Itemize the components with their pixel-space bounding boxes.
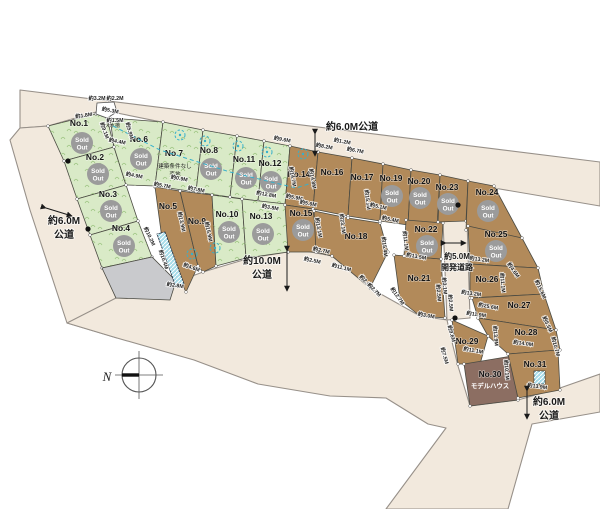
plot-number-label: No.11 bbox=[233, 154, 256, 164]
corner-dot bbox=[537, 267, 540, 270]
sold-out-text: Out bbox=[206, 171, 218, 178]
plot-number-label: No.12 bbox=[259, 158, 282, 168]
sold-out-text: Out bbox=[119, 248, 131, 255]
corner-dot bbox=[439, 174, 442, 177]
plot-number-label: No.10 bbox=[216, 209, 239, 219]
model-house-label: モデルハウス bbox=[471, 381, 509, 390]
corner-dot bbox=[313, 210, 316, 213]
road-label-text: 約6.0M bbox=[533, 395, 565, 408]
corner-dot bbox=[521, 237, 524, 240]
plot-number-label: No.3 bbox=[99, 189, 117, 199]
plot-number-label: No.25 bbox=[485, 229, 508, 239]
plot-number-label: No.23 bbox=[436, 182, 459, 192]
plot-number-label: No.4 bbox=[112, 223, 130, 233]
sold-out-text: Out bbox=[106, 213, 118, 220]
road-label-text: 約5.0M bbox=[444, 251, 470, 261]
corner-dot bbox=[467, 225, 470, 228]
road-label-text: 約6.0M bbox=[48, 214, 80, 227]
corner-dot bbox=[347, 217, 350, 220]
sold-out-text: Sold bbox=[481, 205, 495, 212]
plot-number-label: No.27 bbox=[508, 300, 531, 310]
plot-number-label: No.20 bbox=[408, 176, 431, 186]
plot-note: 建築条件なし bbox=[158, 162, 192, 170]
plot-number-label: No.8 bbox=[200, 145, 218, 155]
sold-out-text: Sold bbox=[117, 240, 131, 247]
sold-out-text: Out bbox=[93, 176, 105, 183]
corner-dot bbox=[241, 198, 244, 201]
sold-out-text: Sold bbox=[385, 190, 399, 197]
corner-dot bbox=[555, 329, 558, 332]
plot-number-label: No.21 bbox=[408, 273, 431, 283]
sold-out-text: Sold bbox=[413, 192, 427, 199]
compass: N bbox=[102, 351, 163, 399]
road-label-text: 公道 bbox=[252, 268, 272, 281]
corner-dot bbox=[179, 190, 182, 193]
subdivision-lot-map: SoldOutNo.1SoldOutNo.2SoldOutNo.3SoldOut… bbox=[0, 0, 600, 509]
survey-dot bbox=[85, 226, 90, 231]
corner-dot bbox=[284, 204, 287, 207]
sold-out-text: Out bbox=[483, 213, 495, 220]
corner-dot bbox=[507, 353, 510, 356]
sold-out-text: Out bbox=[415, 200, 427, 207]
corner-dot bbox=[215, 265, 218, 268]
plot-no23[interactable]: SoldOutNo.23 bbox=[436, 174, 470, 224]
plot-number-label: No.28 bbox=[515, 327, 538, 337]
plot-no20[interactable]: SoldOutNo.20 bbox=[407, 169, 442, 229]
plot-number-label: No.31 bbox=[524, 359, 547, 369]
plot-number-label: No.15 bbox=[290, 208, 313, 218]
plot-number-label: No.26 bbox=[476, 274, 499, 284]
sold-out-text: Sold bbox=[134, 153, 148, 160]
tree-icon-center bbox=[302, 153, 304, 155]
corner-dot bbox=[487, 335, 490, 338]
plot-number-label: No.18 bbox=[345, 231, 368, 241]
tree-icon-center bbox=[266, 151, 268, 153]
corner-dot bbox=[202, 271, 205, 274]
sold-out-text: Sold bbox=[296, 224, 310, 231]
sold-out-text: Sold bbox=[91, 168, 105, 175]
dimension-label: 約3.2M bbox=[88, 94, 106, 102]
stairs-icon-hatch bbox=[534, 371, 545, 384]
corner-dot bbox=[351, 157, 354, 160]
corner-dot bbox=[382, 163, 385, 166]
plot-number-label: No.16 bbox=[321, 167, 344, 177]
corner-dot bbox=[113, 146, 116, 149]
sold-out-text: Out bbox=[136, 161, 148, 168]
tree-icon-center bbox=[204, 140, 206, 142]
sold-out-text: Out bbox=[258, 236, 270, 243]
sold-out-text: Out bbox=[266, 184, 278, 191]
corner-dot bbox=[236, 135, 239, 138]
plot-number-label: No.24 bbox=[476, 187, 499, 197]
corner-dot bbox=[469, 405, 472, 408]
road-label-text: 約10.0M bbox=[243, 254, 281, 267]
corner-dot bbox=[517, 397, 520, 400]
sold-out-text: Out bbox=[491, 253, 503, 260]
corner-dot bbox=[125, 184, 128, 187]
plot-polygon[interactable] bbox=[313, 152, 352, 216]
corner-dot bbox=[465, 229, 468, 232]
compass-north-bar bbox=[122, 373, 139, 376]
corner-dot bbox=[463, 363, 466, 366]
plot-number-label: No.29 bbox=[456, 336, 479, 346]
sold-out-text: Out bbox=[298, 232, 310, 239]
corner-dot bbox=[331, 255, 334, 258]
sold-out-text: Sold bbox=[104, 205, 118, 212]
corner-dot bbox=[89, 234, 92, 237]
plot-no16[interactable]: No.16 bbox=[312, 151, 354, 218]
corner-dot bbox=[76, 198, 79, 201]
plot-number-label: No.7 bbox=[165, 148, 183, 158]
plot-number-label: No.13 bbox=[250, 211, 273, 221]
sold-out-text: Sold bbox=[420, 240, 434, 247]
tree-icon-center bbox=[179, 134, 181, 136]
road-label-text: 約6.0M公道 bbox=[326, 120, 378, 133]
plot-number-label: No.19 bbox=[380, 173, 403, 183]
tree-icon-center bbox=[191, 253, 193, 255]
corner-dot bbox=[211, 194, 214, 197]
sold-out-text: Out bbox=[77, 145, 89, 152]
plot-number-label: No.2 bbox=[86, 152, 104, 162]
sold-out-text: Out bbox=[387, 198, 399, 205]
road-label-text: 開発道路 bbox=[441, 262, 474, 272]
survey-dot bbox=[455, 202, 460, 207]
sold-out-text: Sold bbox=[489, 245, 503, 252]
corner-dot bbox=[317, 151, 320, 154]
corner-dot bbox=[263, 140, 266, 143]
plot-number-label: No.5 bbox=[159, 201, 177, 211]
corner-dot bbox=[467, 180, 470, 183]
corner-dot bbox=[162, 121, 165, 124]
corner-dot bbox=[289, 145, 292, 148]
sold-out-text: Sold bbox=[441, 198, 455, 205]
sold-out-text: Sold bbox=[75, 137, 89, 144]
road-label-text: 公道 bbox=[54, 228, 74, 241]
corner-dot bbox=[137, 220, 140, 223]
corner-dot bbox=[437, 221, 440, 224]
corner-dot bbox=[185, 291, 188, 294]
plot-number-label: No.30 bbox=[479, 369, 502, 379]
corner-dot bbox=[457, 363, 460, 366]
corner-dot bbox=[202, 129, 205, 132]
corner-dot bbox=[440, 258, 443, 261]
dimension-label: 約1.5M bbox=[106, 116, 124, 124]
tree-icon-center bbox=[237, 145, 239, 147]
sold-out-text: Out bbox=[241, 180, 253, 187]
corner-dot bbox=[405, 219, 408, 222]
sold-out-text: Out bbox=[443, 206, 455, 213]
survey-dot bbox=[65, 158, 70, 163]
plot-number-label: No.22 bbox=[415, 224, 438, 234]
corner-dot bbox=[229, 196, 232, 199]
plot-number-label: No.17 bbox=[351, 172, 374, 182]
corner-dot bbox=[393, 254, 396, 257]
sold-out-text: Out bbox=[422, 248, 434, 255]
corner-dot bbox=[410, 169, 413, 172]
sold-out-text: Sold bbox=[222, 226, 236, 233]
survey-dot bbox=[452, 315, 457, 320]
road-label-text: 公道 bbox=[539, 409, 559, 422]
corner-dot bbox=[559, 389, 562, 392]
corner-dot bbox=[403, 255, 406, 258]
corner-dot bbox=[47, 125, 50, 128]
north-label: N bbox=[102, 369, 113, 384]
plot-no10[interactable]: SoldOutNo.10 bbox=[211, 194, 248, 268]
tree-icon-center bbox=[214, 247, 216, 249]
corner-dot bbox=[63, 160, 66, 163]
corner-dot bbox=[444, 317, 447, 320]
sold-out-text: Out bbox=[224, 234, 236, 241]
dimension-label: 約2.2M bbox=[106, 94, 124, 102]
sold-out-text: Sold bbox=[256, 228, 270, 235]
